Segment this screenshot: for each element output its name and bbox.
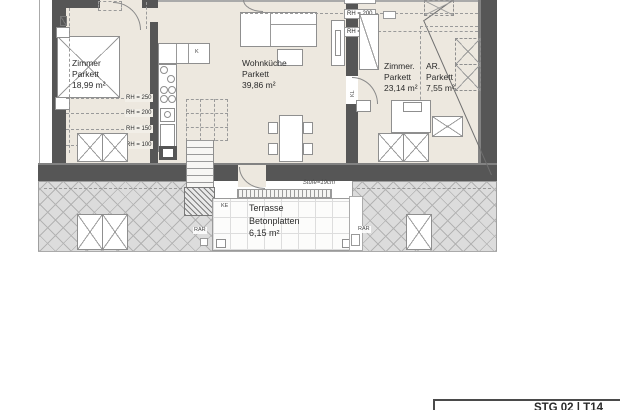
door-kl-label: KL bbox=[350, 89, 357, 98]
eave-dashed-line-right bbox=[357, 188, 491, 189]
skylight-icon bbox=[77, 214, 103, 250]
stair-grid-line bbox=[186, 113, 228, 114]
roof-height-line bbox=[378, 31, 478, 32]
stair-grid-line bbox=[200, 99, 201, 141]
window-pane bbox=[163, 149, 173, 157]
wardrobe-icon bbox=[455, 64, 481, 91]
radiator-core bbox=[335, 30, 341, 56]
terrace-corner-pad bbox=[216, 239, 226, 248]
sofa-divider bbox=[271, 24, 316, 25]
top-cut-line-right bbox=[358, 0, 478, 2]
cellar-stair-icon bbox=[184, 187, 215, 216]
fixture-icon bbox=[60, 16, 67, 26]
ar-dashed-partition bbox=[420, 26, 478, 27]
wall-bottom-mid bbox=[214, 163, 238, 181]
staircase-icon bbox=[186, 140, 214, 188]
oven-dial-icon bbox=[164, 111, 171, 118]
pillow-icon bbox=[403, 102, 422, 112]
left-boundary-line bbox=[39, 0, 40, 181]
staircase-icon bbox=[186, 99, 228, 141]
cabinet-divider bbox=[176, 44, 177, 63]
room-label-wohnkueche: Wohnküche Parkett 39,86 m² bbox=[242, 58, 287, 91]
roof-dashed-line bbox=[69, 8, 70, 153]
kitchen-upper-cabinets bbox=[158, 43, 210, 64]
ke-label: KE bbox=[220, 203, 229, 210]
wall-top-left bbox=[52, 0, 100, 8]
wardrobe-icon bbox=[432, 116, 463, 137]
wall-interior-right-lower bbox=[346, 104, 358, 163]
nightstand-icon bbox=[56, 27, 70, 38]
eave-dashed-line-left bbox=[44, 188, 207, 189]
door-leaf-dashed bbox=[146, 2, 147, 29]
step-strip bbox=[237, 189, 332, 198]
downpipe-box bbox=[351, 234, 360, 246]
stove-icon bbox=[168, 86, 176, 94]
room-label-zimmer-left: Zimmer Parkett 18,99 m² bbox=[72, 58, 106, 91]
skylight-icon bbox=[102, 214, 128, 250]
rh-label: RH = 100 bbox=[125, 141, 153, 149]
chair-icon bbox=[268, 143, 278, 155]
stove-icon bbox=[160, 95, 168, 103]
sink-icon bbox=[160, 66, 168, 74]
wall-bottom-right bbox=[266, 163, 497, 181]
downpipe-box bbox=[200, 238, 208, 246]
tall-cabinet-icon bbox=[359, 14, 379, 70]
sink-icon bbox=[167, 75, 175, 83]
rar-label-right: RAR bbox=[357, 226, 371, 233]
ground-edge-line bbox=[38, 251, 497, 252]
wardrobe-icon bbox=[77, 133, 103, 162]
rh-tag: RH = 150 bbox=[344, 0, 376, 4]
wall-top-left2 bbox=[142, 0, 158, 8]
chair-icon bbox=[268, 122, 278, 134]
skylight-icon bbox=[406, 214, 432, 250]
room-label-ar: AR. Parkett 7,55 m² bbox=[426, 61, 455, 94]
wardrobe-icon bbox=[403, 133, 429, 162]
wardrobe-icon bbox=[378, 133, 404, 162]
wardrobe-icon bbox=[102, 133, 128, 162]
stove-icon bbox=[168, 95, 176, 103]
rh-label: RH = 200 bbox=[125, 109, 153, 117]
rh-label: RH = 150 bbox=[125, 125, 153, 133]
cabinet-divider bbox=[188, 44, 189, 63]
sofa-icon bbox=[240, 12, 317, 47]
room-label-terrasse: Terrasse Betonplatten 6,15 m² bbox=[249, 202, 300, 240]
stair-grid-line bbox=[214, 99, 215, 141]
wardrobe-icon bbox=[455, 38, 481, 65]
kitchen-k-label: K bbox=[194, 49, 200, 56]
stair-grid-line bbox=[186, 127, 228, 128]
rh-marker-box bbox=[383, 11, 396, 19]
roof-height-line bbox=[66, 98, 124, 99]
chair-icon bbox=[303, 143, 313, 155]
title-block: STG 02 | T14 bbox=[433, 399, 620, 410]
room-label-zimmer-right: Zimmer. Parkett 23,14 m² bbox=[384, 61, 418, 94]
wall-bottom-lining bbox=[38, 163, 497, 165]
chair-icon bbox=[303, 122, 313, 134]
stove-icon bbox=[160, 86, 168, 94]
floorplan-page: RH = 250 RH = 200 RH = 150 RH = 100 Zimm… bbox=[0, 0, 620, 410]
rar-label-left: RAR bbox=[193, 227, 207, 234]
title-block-label: STG 02 | T14 bbox=[534, 402, 603, 410]
nightstand-icon bbox=[356, 100, 371, 112]
roof-height-line bbox=[66, 113, 124, 114]
dining-table-icon bbox=[279, 115, 303, 162]
wall-bottom-left bbox=[38, 163, 186, 181]
sofa-divider bbox=[270, 13, 271, 46]
roof-height-line bbox=[66, 129, 124, 130]
step-label: Stufe=19cm bbox=[288, 180, 336, 187]
rh-label: RH = 250 bbox=[125, 94, 153, 102]
